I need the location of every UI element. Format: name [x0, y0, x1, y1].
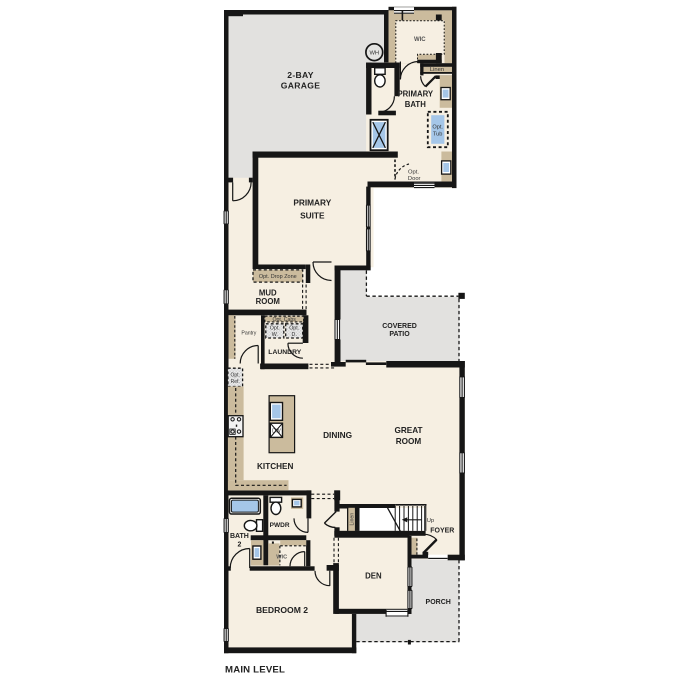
svg-text:Ref.: Ref.: [231, 379, 240, 385]
svg-text:MAIN LEVEL: MAIN LEVEL: [225, 664, 285, 675]
svg-text:Linen: Linen: [350, 513, 356, 526]
svg-text:PORCH: PORCH: [426, 599, 451, 606]
svg-text:ROOM: ROOM: [256, 297, 280, 306]
svg-text:D.: D.: [292, 332, 297, 338]
svg-text:2: 2: [237, 541, 241, 548]
svg-text:DW: DW: [272, 428, 281, 434]
svg-text:BATH: BATH: [405, 100, 426, 109]
svg-text:Opt.: Opt.: [230, 372, 239, 378]
svg-text:PWDR: PWDR: [270, 522, 290, 529]
svg-text:COVERED: COVERED: [382, 323, 417, 330]
svg-text:Opt.: Opt.: [289, 326, 299, 332]
svg-text:Opt. Drop Zone: Opt. Drop Zone: [259, 274, 297, 280]
svg-text:Linen: Linen: [430, 67, 444, 73]
svg-text:ROOM: ROOM: [396, 437, 422, 446]
svg-text:FOYER: FOYER: [430, 527, 454, 534]
svg-text:GARAGE: GARAGE: [281, 80, 321, 90]
svg-text:Opt.: Opt.: [432, 125, 443, 131]
svg-text:Door: Door: [408, 176, 421, 182]
svg-text:2-BAY: 2-BAY: [287, 70, 314, 80]
svg-text:Opt.: Opt.: [270, 326, 280, 332]
svg-text:LAUNDRY: LAUNDRY: [268, 349, 301, 356]
svg-text:DEN: DEN: [365, 572, 382, 581]
svg-text:Tub: Tub: [433, 132, 442, 138]
svg-text:DINING: DINING: [323, 430, 352, 440]
svg-text:PATIO: PATIO: [389, 331, 410, 338]
svg-text:BEDROOM 2: BEDROOM 2: [256, 605, 308, 615]
svg-text:WIC: WIC: [414, 37, 426, 43]
svg-text:Pantry: Pantry: [241, 331, 256, 337]
svg-text:BATH: BATH: [230, 533, 249, 540]
svg-text:Opt. Cabs: Opt. Cabs: [273, 317, 297, 323]
svg-text:Opt.: Opt.: [408, 170, 419, 176]
svg-text:W.: W.: [272, 332, 278, 338]
svg-text:WIC: WIC: [276, 555, 287, 561]
svg-text:SUITE: SUITE: [300, 211, 325, 221]
svg-text:GREAT: GREAT: [394, 426, 422, 435]
svg-text:PRIMARY: PRIMARY: [293, 197, 331, 207]
svg-text:PRIMARY: PRIMARY: [397, 90, 433, 99]
svg-text:Up: Up: [427, 518, 434, 524]
svg-text:KITCHEN: KITCHEN: [257, 462, 293, 471]
svg-text:WH: WH: [369, 50, 379, 56]
